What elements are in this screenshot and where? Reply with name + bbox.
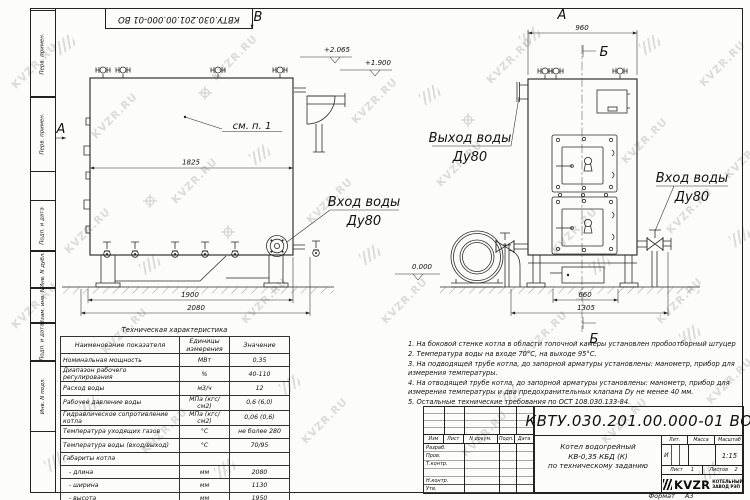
note-item: 4. На отводящей трубе котла, до запорной… [408, 379, 742, 396]
sheet-value: 1 [691, 467, 694, 473]
engineering-drawing-sheet: KVZR.RUKVZR.RUKVZR.RUKVZR.RUKVZR.RUKVZR.… [0, 0, 750, 500]
top-doc-number: КВТУ.030.201.00.000-01 ВО [118, 14, 240, 24]
sign-row: Разраб. [424, 444, 533, 452]
spec-section: Техническая характеристика Наименование … [60, 326, 289, 500]
strip-cell: Подп. и дата [31, 200, 55, 252]
sign-row [424, 468, 533, 476]
spec-row: - длинамм2080 [61, 465, 290, 478]
col-izm: Изм [424, 435, 444, 443]
strip-cell: Перв. примен. [31, 10, 55, 98]
spec-row: - высотамм1950 [61, 492, 290, 500]
lit-value: И [662, 445, 671, 466]
signature-rows: Разраб. Пров. Т.контр. Н.контр. Утв. [424, 444, 534, 493]
spec-row: Температура уходящих газов°Сне более 280 [61, 425, 290, 438]
spec-row: Температура воды (вход/выход)°С70/95 [61, 439, 290, 452]
revision-grid [424, 407, 534, 435]
spec-row: Диапазон рабочего регулирования%40-110 [61, 367, 290, 382]
sheet-label: Лист [670, 467, 683, 473]
spec-header-name: Наименование показателя [61, 337, 180, 354]
doc-number: КВТУ.030.201.00.000-01 ВО [534, 407, 743, 435]
format-label: Формат [649, 492, 675, 500]
spec-row: - ширинамм1130 [61, 479, 290, 492]
strip-cell: Инв. N дубл. [31, 250, 55, 289]
note-item: 1. На боковой стенке котла в области топ… [408, 340, 742, 349]
col-list: Лист [444, 435, 464, 443]
spec-table-title: Техническая характеристика [60, 326, 289, 334]
sign-row: Т.контр. [424, 460, 533, 468]
sign-row: Н.контр. [424, 477, 533, 485]
technical-notes: 1. На боковой стенке котла в области топ… [408, 340, 742, 408]
sign-row: Пров. [424, 452, 533, 460]
sheets-value: 2 [734, 467, 737, 473]
title-block-right: Лит. Масса Масштаб И 1:15 Лист 1 Листов … [661, 435, 743, 493]
right-values: И 1:15 [662, 445, 744, 466]
product-name-line3: по техническому заданию [535, 461, 661, 471]
strip-cell: Взам. инв. N [31, 287, 55, 324]
product-name: Котел водогрейный КВ-0,35 КБД (К) по тех… [534, 435, 661, 493]
logo-stripes-icon [663, 479, 672, 490]
spec-row: Гидравлическое сопротивление котлаМПа (к… [61, 410, 290, 425]
col-podp: Подп. [498, 435, 515, 443]
note-item: 2. Температура воды на входе 70°С, на вы… [408, 350, 742, 359]
spec-row: Рабочее давление водыМПа (кгс/см2)0,6 (6… [61, 395, 290, 410]
sheet-row: Лист 1 Листов 2 [662, 466, 744, 475]
product-name-line2: КВ-0,35 КБД (К) [535, 452, 661, 462]
spec-header-unit: Единицы измерения [180, 337, 230, 354]
lit-label: Лит. [662, 436, 688, 444]
strip-cell: Подп. и дата [31, 322, 55, 362]
spec-header-row: Наименование показателя Единицы измерени… [61, 337, 290, 354]
logo-caption-line2: ЗАВОД РЭП [712, 485, 743, 490]
format-value: А3 [685, 492, 694, 500]
frame-strip-divider [55, 8, 56, 492]
title-block-columns: Изм Лист N докум. Подп. Дата [424, 435, 534, 444]
note-item: 3. На подводящей трубе котла, до запорно… [408, 360, 742, 377]
mass-label: Масса [688, 436, 715, 444]
strip-cell: Инв. N подл. [31, 360, 55, 432]
spec-table: Наименование показателя Единицы измерени… [60, 336, 290, 500]
top-doc-number-box: КВТУ.030.201.00.000-01 ВО [105, 9, 253, 29]
spec-row: Габариты котла [61, 452, 290, 465]
logo-text: KVZR [674, 478, 710, 492]
format-note: Формат А3 [600, 492, 742, 500]
spec-row: Расход водым3/ч12 [61, 382, 290, 395]
scale-value: 1:15 [715, 445, 744, 466]
col-data: Дата [515, 435, 533, 443]
logo-caption: КОТЕЛЬНЫЙ ЗАВОД РЭП [712, 480, 743, 490]
product-name-line1: Котел водогрейный [535, 442, 661, 452]
scale-label: Масштаб [715, 436, 744, 444]
right-headers: Лит. Масса Масштаб [662, 436, 744, 445]
spec-row: Номинальная мощностьМВт0,35 [61, 354, 290, 367]
strip-cell: Перв. примен. [31, 96, 55, 172]
spec-header-value: Значение [230, 337, 290, 354]
sign-row: Утв. [424, 485, 533, 493]
title-block: Изм Лист N докум. Подп. Дата Разраб. Про… [423, 406, 744, 494]
sheets-label: Листов [709, 467, 728, 473]
col-docnum: N докум. [464, 435, 499, 443]
